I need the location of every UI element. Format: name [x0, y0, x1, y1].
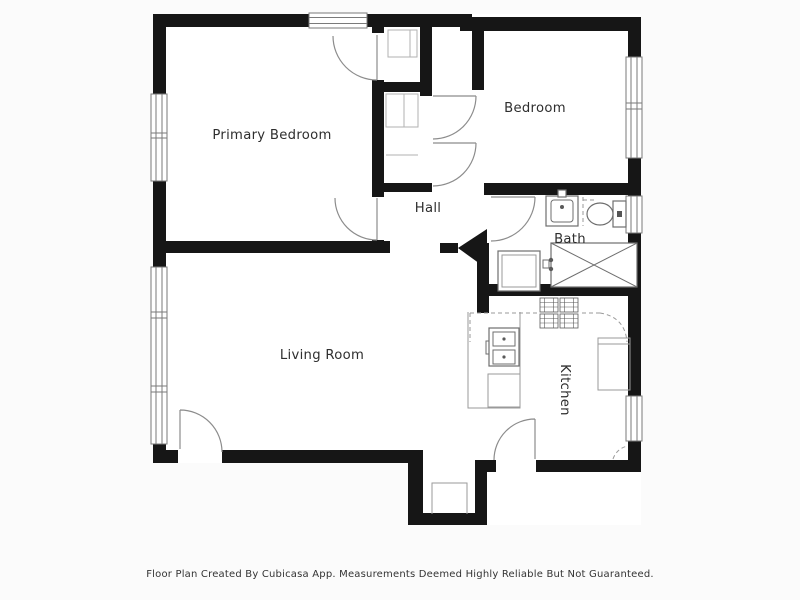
room-label-bath: Bath: [554, 232, 586, 247]
window-left-living-room: [151, 267, 167, 444]
kitchen-sink-icon: [486, 328, 519, 366]
window-right-bath: [626, 196, 642, 233]
window-right-kitchen: [626, 396, 642, 441]
room-label-hall: Hall: [415, 201, 442, 216]
footer-disclaimer: Floor Plan Created By Cubicasa App. Meas…: [146, 569, 654, 580]
room-label-bedroom: Bedroom: [504, 101, 566, 116]
window-left-primary-bedroom: [151, 94, 167, 181]
toilet-icon: [587, 201, 626, 227]
floorplan-canvas: Primary Bedroom Bedroom Hall Bath Living…: [0, 0, 800, 600]
burner: [560, 298, 578, 312]
burner: [540, 314, 558, 328]
window-right-bedroom: [626, 57, 642, 158]
washing-machine-icon: [498, 251, 540, 291]
window-top-primary-bedroom: [309, 13, 367, 28]
room-label-kitchen: Kitchen: [557, 364, 572, 416]
room-label-primary-bedroom: Primary Bedroom: [212, 128, 331, 143]
shower-icon: [551, 243, 637, 287]
burner: [540, 298, 558, 312]
room-label-living-room: Living Room: [280, 348, 364, 363]
floor-plan-svg: Primary Bedroom Bedroom Hall Bath Living…: [0, 0, 800, 600]
burner: [560, 314, 578, 328]
